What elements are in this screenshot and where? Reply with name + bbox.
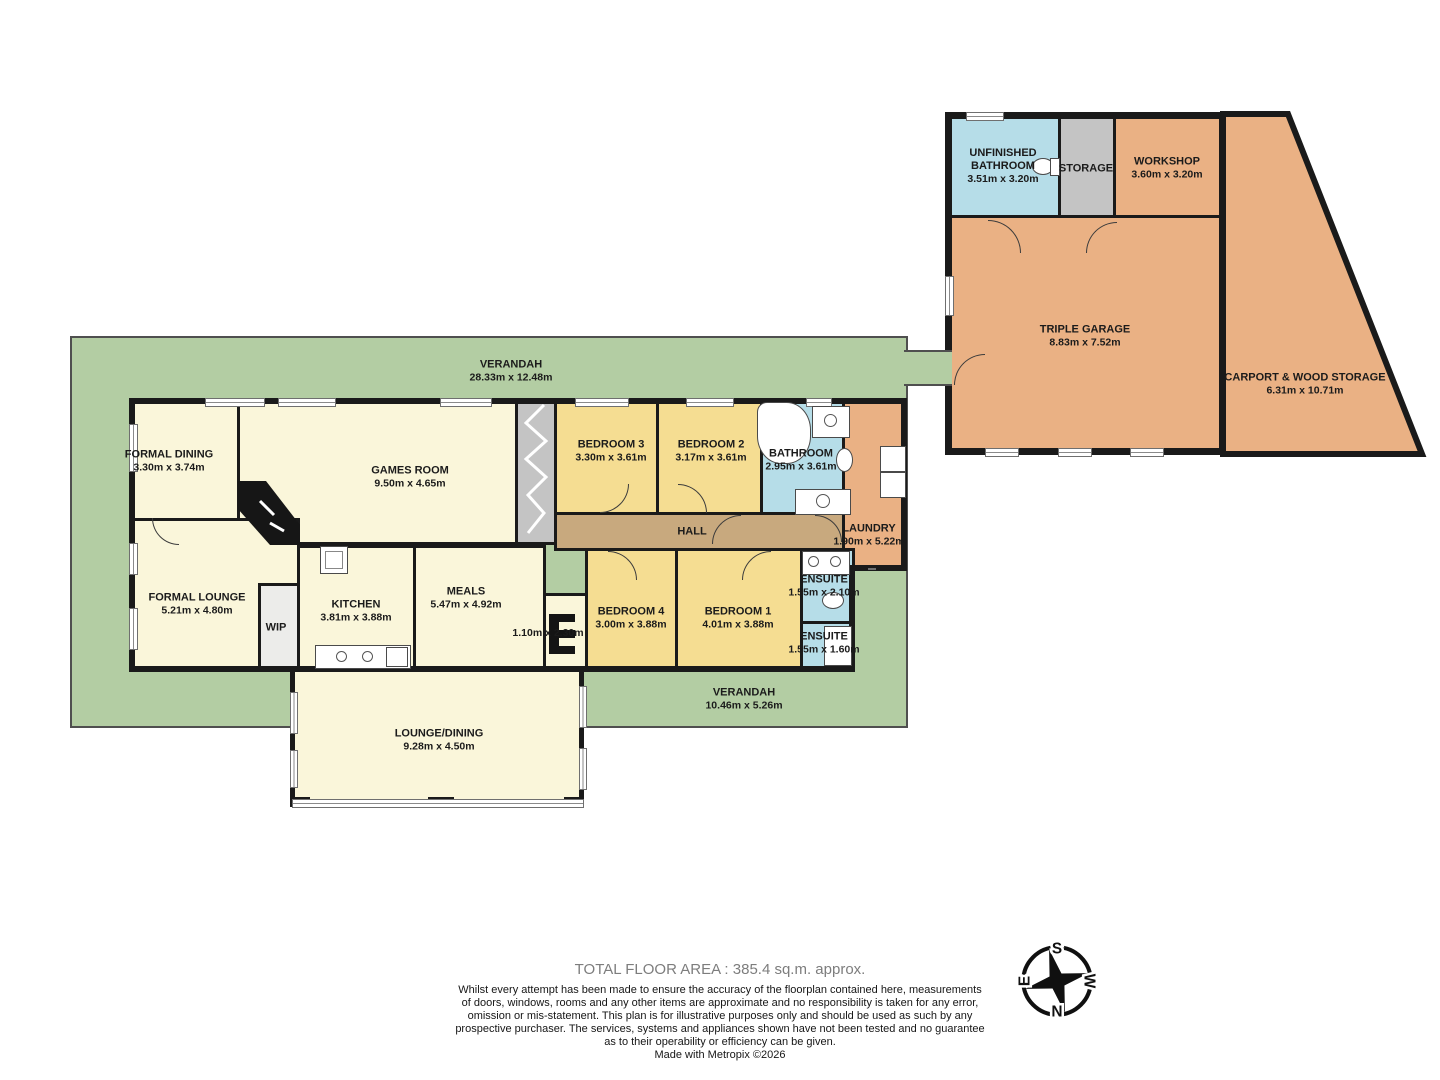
label-meals: MEALS 5.47m x 4.92m bbox=[430, 585, 501, 610]
sink-basin bbox=[830, 556, 841, 567]
room-name: BEDROOM 3 bbox=[578, 438, 645, 450]
window bbox=[129, 608, 138, 650]
window bbox=[579, 748, 587, 790]
window bbox=[205, 398, 265, 407]
label-bedroom-4: BEDROOM 4 3.00m x 3.88m bbox=[595, 605, 666, 630]
window bbox=[278, 398, 336, 407]
bay-zigzag-windows bbox=[518, 401, 554, 542]
room-name: KITCHEN bbox=[332, 598, 381, 610]
room-name: WORKSHOP bbox=[1134, 155, 1200, 167]
window bbox=[985, 448, 1019, 457]
room-dims: 9.50m x 4.65m bbox=[371, 477, 449, 489]
label-lounge-dining: LOUNGE/DINING 9.28m x 4.50m bbox=[395, 727, 484, 752]
room-dims: 1.10m x 2.30m bbox=[512, 627, 583, 639]
room-name: WIP bbox=[266, 622, 287, 634]
room-name: VERANDAH bbox=[480, 358, 542, 370]
label-formal-dining: FORMAL DINING 3.30m x 3.74m bbox=[125, 448, 213, 473]
label-formal-lounge: FORMAL LOUNGE 5.21m x 4.80m bbox=[149, 591, 246, 616]
label-laundry: LAUNDRY 1.90m x 5.22m bbox=[833, 522, 904, 547]
window bbox=[290, 750, 298, 788]
room-dims: 3.30m x 3.74m bbox=[125, 461, 213, 473]
window bbox=[290, 692, 298, 734]
sink-basin bbox=[824, 414, 837, 427]
window bbox=[1130, 448, 1164, 457]
room-dims: 28.33m x 12.48m bbox=[470, 371, 553, 383]
disclaimer-line: prospective purchaser. The services, sys… bbox=[0, 1023, 1440, 1036]
sink-basin bbox=[808, 556, 819, 567]
label-hall: HALL bbox=[677, 526, 706, 539]
disclaimer-line: of doors, windows, rooms and any other i… bbox=[0, 997, 1440, 1010]
room-name: UNFINISHED BATHROOM bbox=[969, 147, 1036, 172]
room-name: TRIPLE GARAGE bbox=[1040, 323, 1130, 335]
label-verandah-bottom: VERANDAH 10.46m x 5.26m bbox=[705, 686, 782, 711]
label-bathroom: BATHROOM 2.95m x 3.61m bbox=[765, 447, 836, 472]
compass-letter-s: S bbox=[1052, 940, 1062, 957]
cooktop bbox=[320, 546, 348, 574]
label-wip: WIP bbox=[266, 622, 287, 635]
window bbox=[686, 398, 734, 407]
floorplan-canvas: VERANDAH 28.33m x 12.48m FORMAL DINING 3… bbox=[0, 0, 1440, 1080]
room-dims: 10.46m x 5.26m bbox=[705, 699, 782, 711]
label-games-room: GAMES ROOM 9.50m x 4.65m bbox=[371, 464, 449, 489]
sink-basin bbox=[362, 651, 373, 662]
room-dims: 5.21m x 4.80m bbox=[149, 604, 246, 616]
dishwasher bbox=[386, 647, 408, 667]
room-dims: 4.01m x 3.88m bbox=[702, 618, 773, 630]
room-dims: 8.83m x 7.52m bbox=[1040, 336, 1130, 348]
room-name: ENSUITE bbox=[800, 630, 848, 642]
window bbox=[945, 276, 954, 316]
credit-line: Made with Metropix ©2026 bbox=[0, 1049, 1440, 1062]
room-dims: 1.55m x 2.10m bbox=[788, 586, 859, 598]
lounge-bottom-glazing bbox=[292, 799, 584, 808]
room-name: GAMES ROOM bbox=[371, 464, 449, 476]
room-dims: 6.31m x 10.71m bbox=[1224, 384, 1385, 396]
house-wall-bottom bbox=[129, 666, 855, 672]
room-dims: 9.28m x 4.50m bbox=[395, 740, 484, 752]
laundry-tub bbox=[880, 472, 906, 498]
label-bedroom-1: BEDROOM 1 4.01m x 3.88m bbox=[702, 605, 773, 630]
window bbox=[868, 568, 876, 570]
room-name: STORAGE bbox=[1059, 163, 1113, 175]
room-name: CARPORT & WOOD STORAGE bbox=[1224, 371, 1385, 383]
window bbox=[575, 398, 629, 407]
room-name: VERANDAH bbox=[713, 686, 775, 698]
room-dims: 3.30m x 3.61m bbox=[575, 451, 646, 463]
label-unfinished-bathroom: UNFINISHED BATHROOM 3.51m x 3.20m bbox=[953, 147, 1053, 185]
label-workshop: WORKSHOP 3.60m x 3.20m bbox=[1131, 155, 1202, 180]
room-name: MEALS bbox=[447, 585, 486, 597]
label-store: 1.10m x 2.30m bbox=[512, 627, 583, 639]
room-name: BATHROOM bbox=[769, 447, 833, 459]
room-dims: 3.00m x 3.88m bbox=[595, 618, 666, 630]
label-carport: CARPORT & WOOD STORAGE 6.31m x 10.71m bbox=[1224, 371, 1385, 396]
disclaimer-line: as to their operability or efficiency ca… bbox=[0, 1036, 1440, 1049]
window bbox=[440, 398, 492, 407]
room-dims: 1.55m x 1.60m bbox=[788, 643, 859, 655]
room-name: HALL bbox=[677, 526, 706, 538]
room-dims: 3.81m x 3.88m bbox=[320, 611, 391, 623]
room-dims: 3.60m x 3.20m bbox=[1131, 168, 1202, 180]
window bbox=[579, 686, 587, 728]
label-ensuite-1: ENSUITE 1.55m x 2.10m bbox=[788, 573, 859, 598]
label-bedroom-3: BEDROOM 3 3.30m x 3.61m bbox=[575, 438, 646, 463]
room-dims: 1.90m x 5.22m bbox=[833, 535, 904, 547]
shower-drain bbox=[816, 494, 830, 508]
label-ensuite-2: ENSUITE 1.55m x 1.60m bbox=[788, 630, 859, 655]
room-name: FORMAL DINING bbox=[125, 448, 213, 460]
room-name: BEDROOM 2 bbox=[678, 438, 745, 450]
disclaimer-line: Whilst every attempt has been made to en… bbox=[0, 984, 1440, 997]
label-verandah-top: VERANDAH 28.33m x 12.48m bbox=[470, 358, 553, 383]
window bbox=[966, 112, 1004, 121]
room-dims: 3.51m x 3.20m bbox=[953, 173, 1053, 185]
room-name: LAUNDRY bbox=[842, 522, 895, 534]
sink-basin bbox=[336, 651, 347, 662]
room-name: BEDROOM 4 bbox=[598, 605, 665, 617]
window bbox=[1058, 448, 1092, 457]
room-dims: 5.47m x 4.92m bbox=[430, 598, 501, 610]
room-name: FORMAL LOUNGE bbox=[149, 591, 246, 603]
label-kitchen: KITCHEN 3.81m x 3.88m bbox=[320, 598, 391, 623]
label-triple-garage: TRIPLE GARAGE 8.83m x 7.52m bbox=[1040, 323, 1130, 348]
total-floor-area: TOTAL FLOOR AREA : 385.4 sq.m. approx. bbox=[0, 961, 1440, 978]
games-room-bay bbox=[515, 398, 557, 545]
room-dims: 3.17m x 3.61m bbox=[675, 451, 746, 463]
disclaimer-line: omission or mis-statement. This plan is … bbox=[0, 1010, 1440, 1023]
verandah-walkway bbox=[904, 350, 952, 386]
room-carport bbox=[1218, 108, 1428, 460]
label-storage: STORAGE bbox=[1059, 163, 1113, 176]
label-bedroom-2: BEDROOM 2 3.17m x 3.61m bbox=[675, 438, 746, 463]
laundry-wall-bottom bbox=[849, 565, 907, 571]
stairs bbox=[236, 479, 302, 547]
laundry-tub bbox=[880, 446, 906, 472]
window bbox=[129, 543, 138, 575]
room-name: ENSUITE bbox=[800, 573, 848, 585]
room-name: BEDROOM 1 bbox=[705, 605, 772, 617]
toilet bbox=[836, 448, 853, 472]
room-name: LOUNGE/DINING bbox=[395, 727, 484, 739]
room-dims: 2.95m x 3.61m bbox=[765, 460, 836, 472]
garage-wall-right bbox=[1219, 112, 1226, 455]
